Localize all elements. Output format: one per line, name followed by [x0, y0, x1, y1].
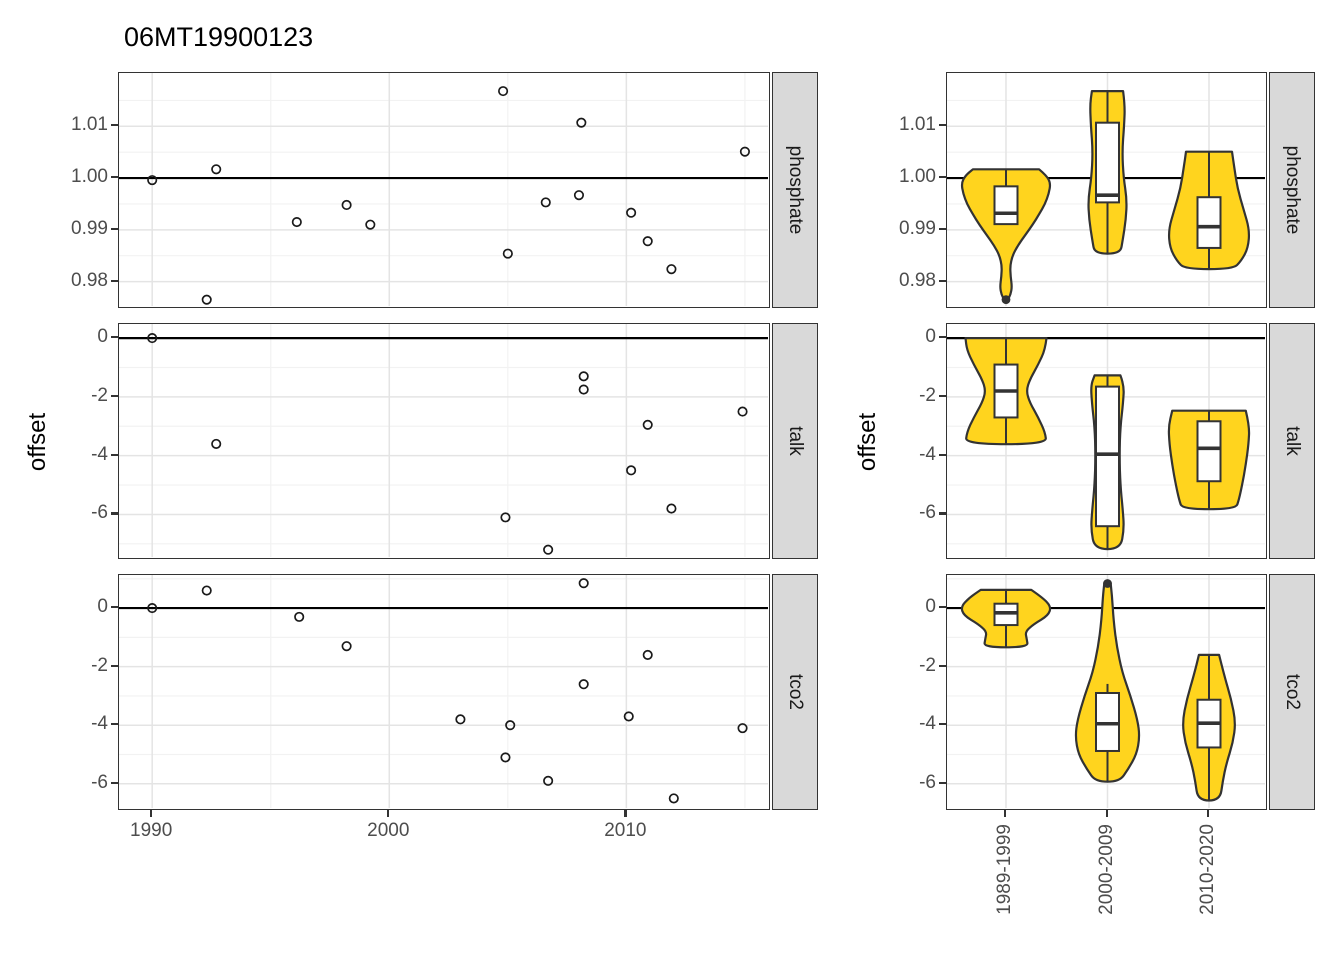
data-point	[579, 372, 587, 380]
x-tick-mark	[1004, 810, 1006, 817]
y-tick-mark	[111, 336, 118, 338]
y-tick-mark	[111, 176, 118, 178]
data-point	[575, 191, 583, 199]
data-point	[366, 220, 374, 228]
y-tick-mark	[939, 395, 946, 397]
facet-strip-tco2-left: tco2	[772, 574, 818, 810]
y-tick-label: -2	[866, 385, 936, 407]
y-tick-label: -2	[866, 655, 936, 677]
y-tick-label: 0.98	[866, 270, 936, 292]
x-tick-mark	[624, 810, 626, 817]
facet-strip-label: phosphate	[1281, 146, 1303, 235]
x-tick-mark	[150, 810, 152, 817]
y-tick-label: -6	[866, 502, 936, 524]
data-point	[203, 586, 211, 594]
y-tick-label: 0	[866, 326, 936, 348]
x-tick-label: 2000	[348, 820, 428, 842]
y-tick-label: 0	[866, 596, 936, 618]
y-tick-label: -2	[38, 655, 108, 677]
box-plot	[1096, 387, 1119, 527]
data-point	[667, 265, 675, 273]
y-tick-mark	[111, 280, 118, 282]
data-point	[212, 440, 220, 448]
data-point	[644, 237, 652, 245]
y-tick-label: 1.00	[866, 166, 936, 188]
facet-strip-label: talk	[1281, 426, 1303, 456]
figure: 06MT19900123 offset offset phosphate tal…	[0, 0, 1344, 960]
outlier-point	[1103, 579, 1112, 588]
data-point	[667, 504, 675, 512]
y-axis-title-right: offset	[854, 406, 882, 478]
y-tick-mark	[939, 280, 946, 282]
data-point	[499, 87, 507, 95]
facet-strip-label: talk	[784, 426, 806, 456]
facet-strip-talk-right: talk	[1269, 323, 1315, 559]
data-point	[295, 613, 303, 621]
data-point	[456, 715, 464, 723]
y-tick-mark	[111, 512, 118, 514]
facet-strip-phosphate-left: phosphate	[772, 72, 818, 308]
data-point	[212, 165, 220, 173]
panel-scatter-talk	[118, 323, 770, 559]
y-tick-mark	[111, 124, 118, 126]
y-tick-mark	[939, 723, 946, 725]
y-tick-label: 0.99	[38, 218, 108, 240]
y-tick-label: 1.01	[38, 114, 108, 136]
data-point	[542, 198, 550, 206]
panel-scatter-tco2	[118, 574, 770, 810]
facet-strip-phosphate-right: phosphate	[1269, 72, 1315, 308]
data-point	[579, 385, 587, 393]
plot-title: 06MT19900123	[124, 22, 313, 53]
y-tick-mark	[939, 176, 946, 178]
x-tick-mark	[1207, 810, 1209, 817]
y-tick-label: -4	[866, 713, 936, 735]
panel-scatter-phosphate	[118, 72, 770, 308]
y-tick-label: -4	[38, 444, 108, 466]
y-tick-label: -6	[38, 502, 108, 524]
data-point	[627, 209, 635, 217]
y-tick-mark	[939, 454, 946, 456]
y-tick-label: 1.01	[866, 114, 936, 136]
y-tick-mark	[939, 336, 946, 338]
box-plot	[994, 186, 1017, 224]
box-plot	[1198, 197, 1221, 248]
y-tick-label: 1.00	[38, 166, 108, 188]
outlier-point	[1002, 295, 1011, 304]
y-tick-label: -4	[866, 444, 936, 466]
data-point	[544, 546, 552, 554]
y-tick-mark	[939, 782, 946, 784]
y-tick-mark	[939, 124, 946, 126]
data-point	[644, 421, 652, 429]
facet-strip-label: phosphate	[784, 146, 806, 235]
x-tick-mark	[387, 810, 389, 817]
x-tick-label: 1990	[111, 820, 191, 842]
y-tick-mark	[111, 723, 118, 725]
data-point	[579, 680, 587, 688]
box-plot	[1198, 421, 1221, 481]
y-tick-label: -6	[38, 772, 108, 794]
facet-strip-tco2-right: tco2	[1269, 574, 1315, 810]
y-tick-label: 0.98	[38, 270, 108, 292]
data-point	[670, 794, 678, 802]
x-tick-mark	[1106, 810, 1108, 817]
y-tick-label: 0.99	[866, 218, 936, 240]
y-tick-mark	[939, 665, 946, 667]
panel-violin-talk	[946, 323, 1267, 559]
y-tick-mark	[111, 665, 118, 667]
x-tick-label: 1989-1999	[995, 824, 1015, 936]
data-point	[342, 201, 350, 209]
y-tick-label: 0	[38, 326, 108, 348]
data-point	[342, 642, 350, 650]
y-tick-mark	[939, 606, 946, 608]
x-tick-label: 2010	[585, 820, 665, 842]
data-point	[644, 651, 652, 659]
y-tick-mark	[111, 395, 118, 397]
y-tick-mark	[111, 454, 118, 456]
y-tick-mark	[111, 228, 118, 230]
y-axis-title-left: offset	[24, 406, 52, 478]
data-point	[293, 218, 301, 226]
panel-violin-tco2	[946, 574, 1267, 810]
panel-violin-phosphate	[946, 72, 1267, 308]
y-tick-mark	[111, 782, 118, 784]
y-tick-label: -6	[866, 772, 936, 794]
y-tick-mark	[939, 228, 946, 230]
facet-strip-talk-left: talk	[772, 323, 818, 559]
y-tick-label: -2	[38, 385, 108, 407]
facet-strip-label: tco2	[784, 674, 806, 710]
data-point	[203, 295, 211, 303]
x-tick-label: 2010-2020	[1198, 824, 1218, 936]
facet-strip-label: tco2	[1281, 674, 1303, 710]
y-tick-label: 0	[38, 596, 108, 618]
x-tick-label: 2000-2009	[1097, 824, 1117, 936]
y-tick-mark	[939, 512, 946, 514]
data-point	[627, 466, 635, 474]
data-point	[579, 579, 587, 587]
box-plot	[1096, 123, 1119, 203]
y-tick-mark	[111, 606, 118, 608]
y-tick-label: -4	[38, 713, 108, 735]
